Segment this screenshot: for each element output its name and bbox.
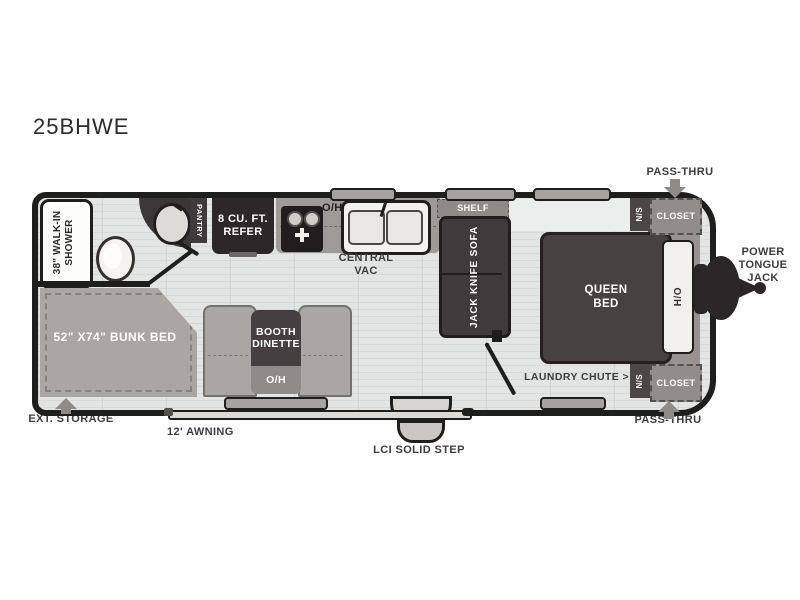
cooktop <box>281 206 323 252</box>
pass-thru-top-arrowhead <box>664 187 686 198</box>
step-label: LCI SOLID STEP <box>360 444 478 456</box>
awning-end-cap-right <box>462 408 474 416</box>
ext-storage-arrow <box>61 408 71 414</box>
entry-step-lower <box>397 420 445 443</box>
jack-knife-sofa: JACK KNIFE SOFA <box>439 216 511 338</box>
awning-bar <box>168 410 472 420</box>
nightstand-top-label: N/S <box>635 207 644 222</box>
closet-bottom-label: CLOSET <box>657 378 696 389</box>
kitchen-overhead-label: O/H <box>322 202 342 214</box>
bunk-bed-label: 52" X74" BUNK BED <box>40 330 190 344</box>
headboard-overhead: H/O <box>662 240 694 354</box>
queen-bed-label: QUEEN BED <box>576 284 636 311</box>
pantry: PANTRY <box>190 198 207 243</box>
window-bottom-bedroom <box>540 397 606 410</box>
pass-thru-top-arrow <box>670 179 680 187</box>
dinette-overhead: O/H <box>251 366 301 394</box>
bathroom-wall <box>38 281 150 287</box>
awning-label: 12' AWNING <box>167 426 234 438</box>
shower-label: 38" WALK-IN SHOWER <box>52 202 76 283</box>
pantry-label: PANTRY <box>194 204 203 238</box>
pass-thru-top-label: PASS-THRU <box>640 166 720 178</box>
window-top-kitchen <box>330 188 396 201</box>
kitchen-sink <box>341 200 431 255</box>
window-bottom-dinette <box>224 397 328 410</box>
nightstand-bottom-label: N/S <box>635 374 644 389</box>
refrigerator: 8 CU. FT. REFER <box>212 198 274 254</box>
shelf-label: SHELF <box>457 203 489 214</box>
laundry-chute-label: LAUNDRY CHUTE > <box>505 371 629 383</box>
dinette-table: BOOTH DINETTE <box>251 310 301 366</box>
awning-end-cap-left <box>164 408 173 416</box>
closet-top-label: CLOSET <box>657 211 696 222</box>
queen-bed: QUEEN BED <box>540 232 672 364</box>
pass-thru-bottom-arrow <box>664 411 674 419</box>
dinette-overhead-label: O/H <box>266 374 286 386</box>
dinette-label: BOOTH DINETTE <box>252 326 300 351</box>
central-vac-label: CENTRAL VAC <box>335 252 397 278</box>
bedroom-wall-stub <box>492 330 502 342</box>
nightstand-top: N/S <box>630 198 650 231</box>
bed-platform <box>508 199 648 231</box>
headboard-overhead-label: H/O <box>673 287 684 306</box>
window-top-bedroom <box>533 188 611 201</box>
toilet <box>96 236 135 282</box>
walk-in-shower: 38" WALK-IN SHOWER <box>40 199 93 289</box>
window-top-sofa <box>445 188 516 201</box>
refer-label: 8 CU. FT. REFER <box>214 213 272 239</box>
dinette-seat-right <box>298 305 352 397</box>
floorplan-canvas: { "model": "25BHWE", "exterior": { "pass… <box>0 0 800 600</box>
closet-top: CLOSET <box>650 198 702 235</box>
sofa-label: JACK KNIFE SOFA <box>469 226 481 328</box>
nightstand-bottom: N/S <box>630 364 650 398</box>
page-title: 25BHWE <box>33 114 129 140</box>
dinette-seat-left <box>203 305 257 397</box>
closet-bottom: CLOSET <box>650 364 702 402</box>
